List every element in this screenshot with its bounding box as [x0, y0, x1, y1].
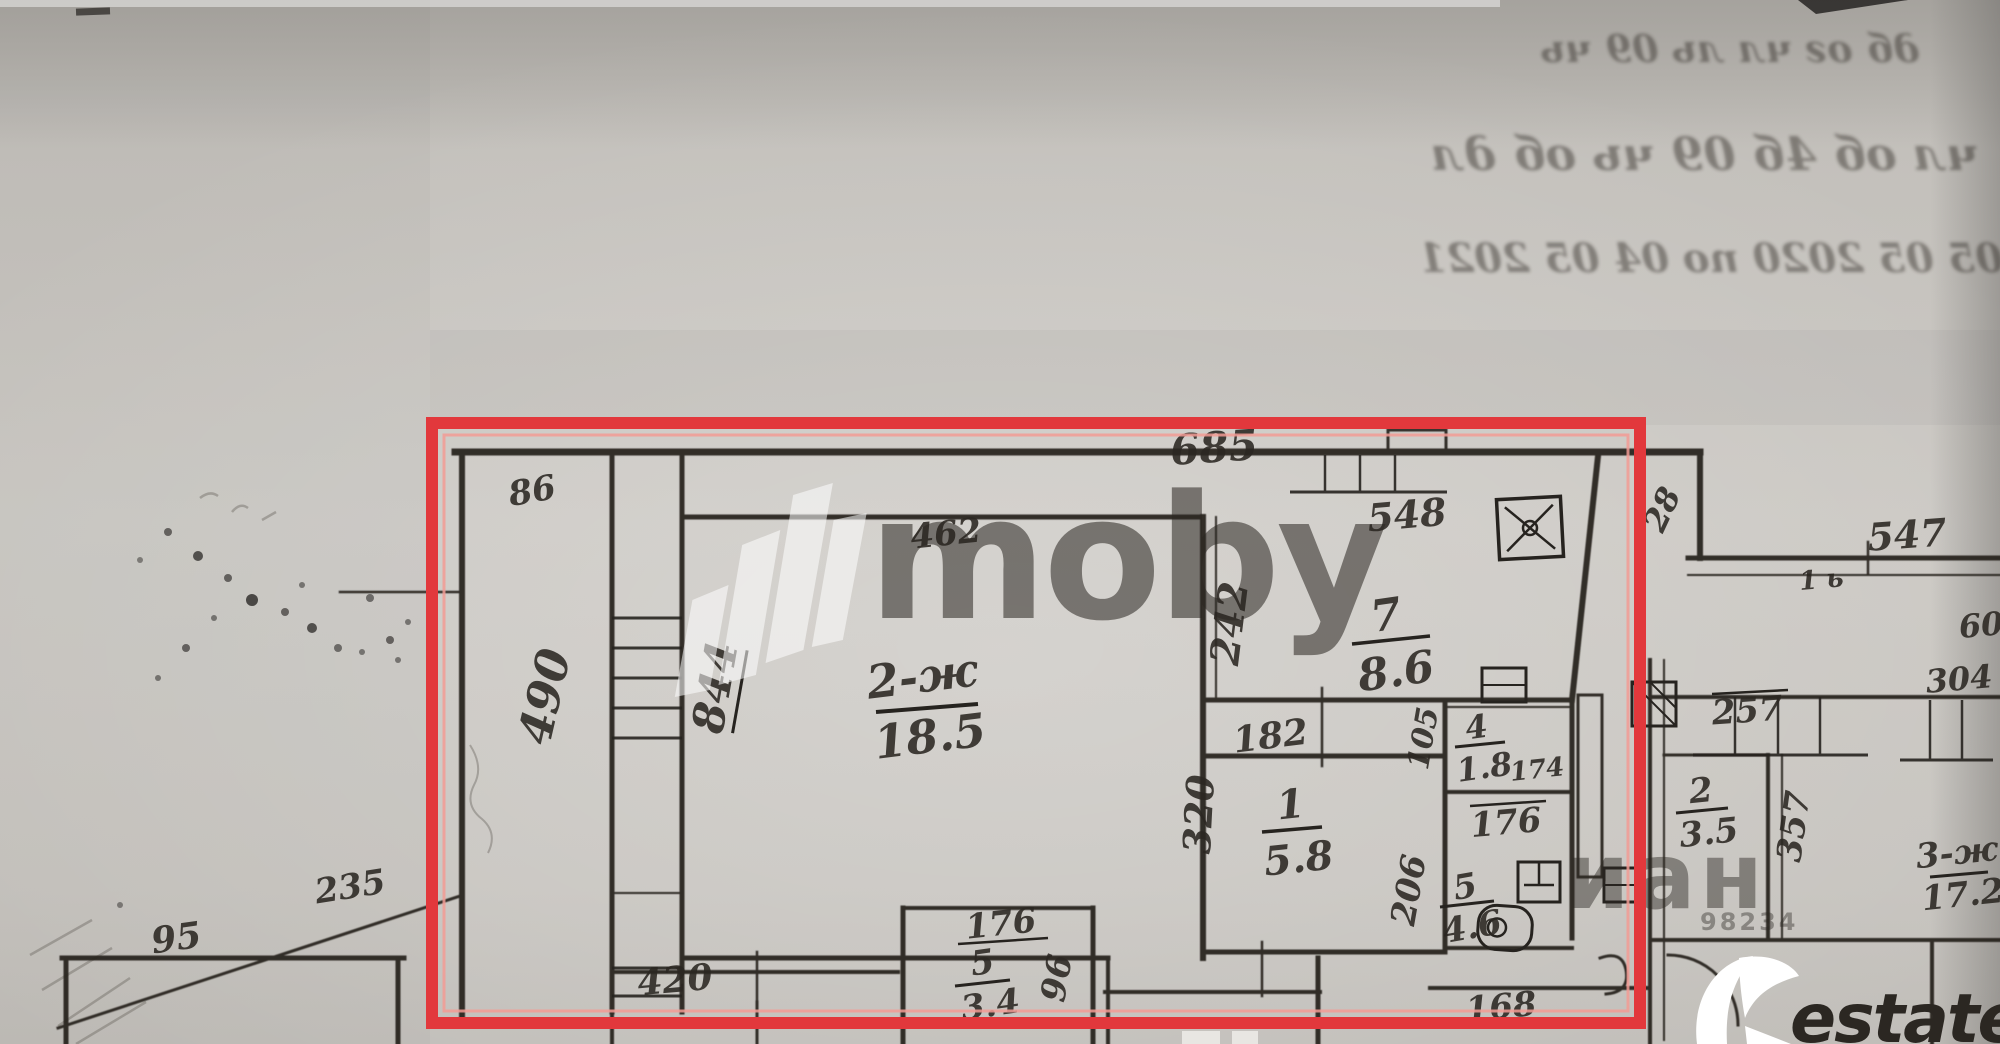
svg-text:17.2: 17.2 [1920, 871, 2000, 919]
svg-text:3-ж: 3-ж [1914, 829, 2000, 878]
room-right3-label: 3-ж 17.2 [1914, 829, 2000, 920]
bath-width-dim: 176 [1469, 800, 1546, 846]
bleed-line-1: дб ог чл ль 09 чь [1540, 26, 1920, 71]
floor-plan-scan: дб ог чл ль 09 чь чл об 4б 09 чь об дл с… [0, 0, 2000, 1044]
dim-176-low-label: 176 [958, 900, 1048, 947]
bleed-line-2: чл об 4б 09 чь об дл [1431, 127, 1980, 181]
pencil-mark: 1 ь [1798, 563, 1845, 597]
dim-547-label: 547 [1866, 509, 1948, 559]
scanned-floorplan-page: дб ог чл ль 09 чь чл об 4б 09 чь об дл с… [0, 0, 2000, 1044]
svg-text:257: 257 [1709, 689, 1784, 734]
dim-257-label: 257 [1709, 689, 1788, 734]
dim-60-label: 60 [1957, 604, 2000, 646]
cian-watermark: иан 98234 [1565, 823, 1799, 936]
bleed-line-3: с 05 05 2020 по 04 05 2021 [1419, 235, 2000, 282]
moby-watermark-text: moby [868, 458, 1387, 659]
svg-text:1.8: 1.8 [1454, 744, 1514, 789]
svg-text:1: 1 [1274, 780, 1307, 830]
cian-watermark-digits: 98234 [1700, 908, 1799, 936]
svg-text:2: 2 [1686, 770, 1715, 812]
scan-edge-dash [76, 7, 110, 15]
living-right-dim: 320 [1174, 773, 1223, 855]
restate-logo-text: estate [1790, 980, 2000, 1044]
closet-len-dim: 174 [1509, 752, 1566, 788]
wall-stubs-below-red [1182, 1031, 1258, 1044]
loggia-width-label: 86 [504, 467, 559, 515]
dim-304-label: 304 [1924, 657, 1994, 701]
svg-text:5.8: 5.8 [1262, 832, 1336, 886]
room-95-label: 95 [149, 914, 204, 963]
svg-text:176: 176 [1469, 800, 1543, 846]
dim-96-label: 96 [1033, 951, 1081, 1005]
dim-420-label: 420 [636, 956, 715, 1004]
